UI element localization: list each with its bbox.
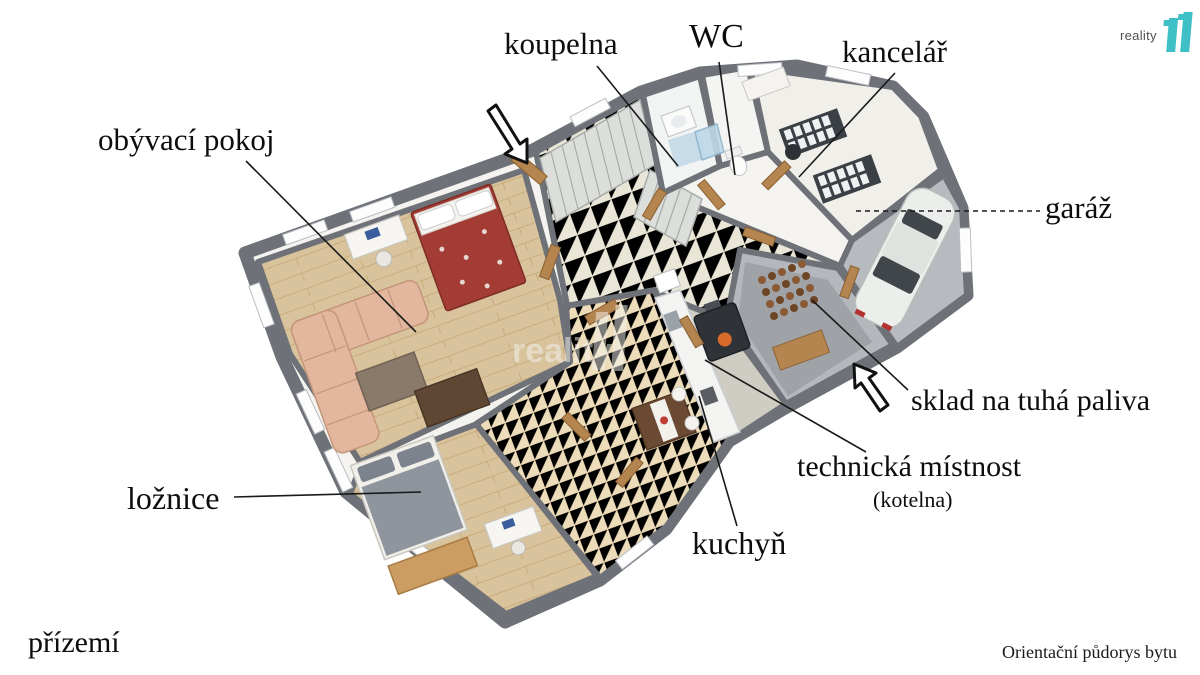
label-loznice: ložnice: [127, 482, 219, 514]
label-garaz: garáž: [1045, 192, 1112, 223]
label-kancelar: kancelář: [842, 36, 947, 67]
entrance-arrow-icon: [488, 105, 527, 163]
label-sklad: sklad na tuhá paliva: [911, 386, 1150, 416]
label-technicka-mistnost: technická místnost: [797, 452, 1021, 482]
side-entrance-arrow-icon: [854, 364, 888, 411]
footer-note: Orientační půdorys bytu: [1002, 642, 1177, 663]
floor-plan-rendering: reality: [0, 0, 1200, 675]
brand-logo: reality: [1116, 6, 1198, 54]
label-kuchyn: kuchyň: [692, 527, 786, 559]
logo-number-glyph: [1162, 8, 1198, 56]
floor-plan-page: reality koupelna WC kancelář: [0, 0, 1200, 675]
office-chair: [785, 144, 801, 160]
label-kotelna: (kotelna): [873, 489, 952, 511]
label-prizemi: přízemí: [28, 628, 120, 658]
logo-text: reality: [1120, 28, 1157, 43]
label-wc: WC: [689, 20, 744, 54]
label-obyvaci-pokoj: obývací pokoj: [98, 124, 275, 155]
label-koupelna: koupelna: [504, 28, 618, 59]
